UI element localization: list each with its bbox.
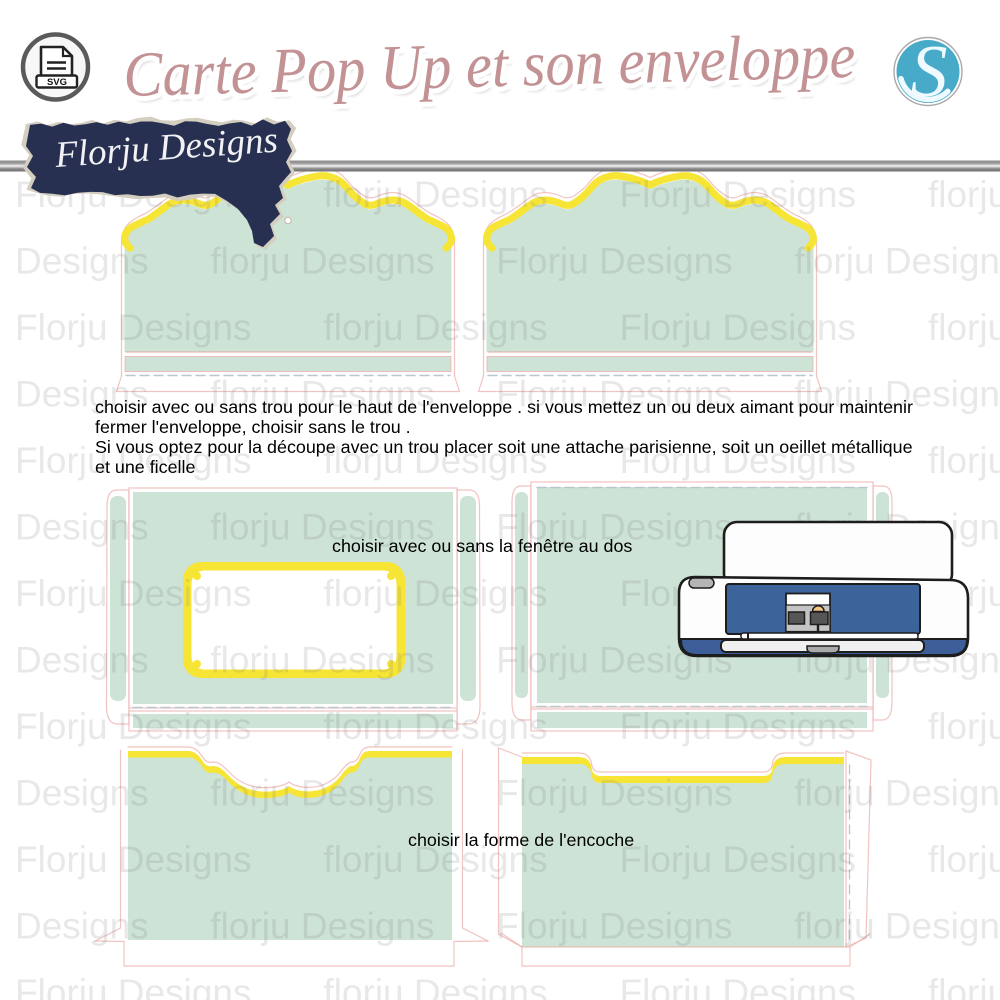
svg-text:Florju Designs florju De: Florju Designs florju Designs Florju Des… [15,972,1000,1000]
svg-text:SVG: SVG [47,77,67,88]
svg-text:Designs florju Designs: Designs florju Designs Florju Designs fl… [15,906,1000,947]
svg-text:Florju Designs florju De: Florju Designs florju Designs Florju Des… [15,307,1000,348]
svg-text:fermer l'enveloppe, choisir sa: fermer l'enveloppe, choisir sans le trou… [95,417,411,437]
svg-text:choisir avec ou sans trou pour: choisir avec ou sans trou pour le haut d… [95,397,913,417]
svg-text:Designs florju Designs: Designs florju Designs Florju Designs fl… [15,773,1000,814]
svg-text:choisir avec ou sans la fenêtr: choisir avec ou sans la fenêtre au dos [332,536,632,556]
svg-text:Si vous optez pour la découpe: Si vous optez pour la découpe avec un tr… [95,437,913,457]
svg-text:Designs florju Designs: Designs florju Designs Florju Designs fl… [15,241,1000,282]
svg-text:et une ficelle: et une ficelle [95,457,196,477]
svg-text:choisir la forme de l'encoche: choisir la forme de l'encoche [408,830,634,850]
svg-text:Florju Designs florju De: Florju Designs florju Designs Florju Des… [15,706,1000,747]
